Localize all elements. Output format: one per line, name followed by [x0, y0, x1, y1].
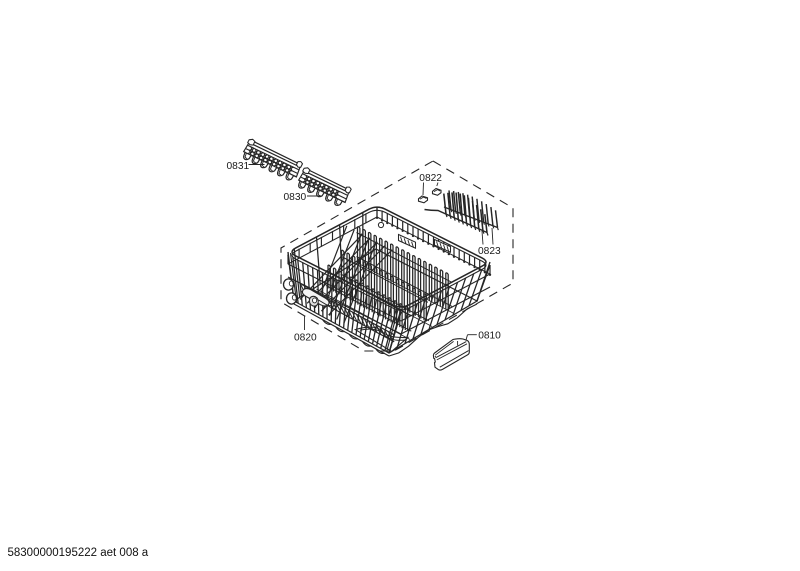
- svg-text:0830: 0830: [284, 192, 307, 203]
- svg-text:0823: 0823: [478, 246, 501, 257]
- svg-text:0820: 0820: [294, 332, 317, 343]
- svg-text:0822: 0822: [419, 173, 442, 184]
- svg-text:0810: 0810: [478, 331, 501, 342]
- svg-text:58300000195222 aet 008 a: 58300000195222 aet 008 a: [8, 547, 149, 559]
- svg-text:0831: 0831: [227, 161, 250, 172]
